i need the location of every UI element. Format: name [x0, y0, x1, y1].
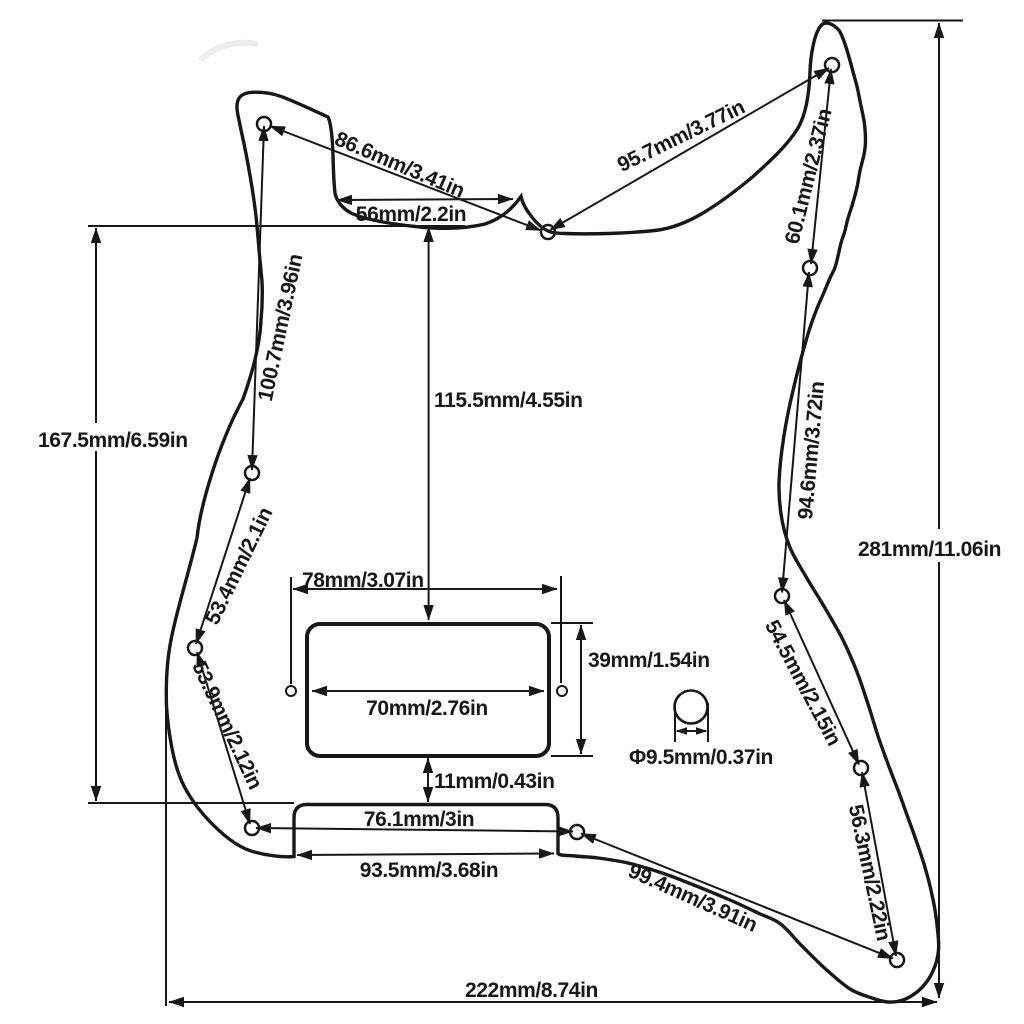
svg-text:60.1mm/2.37in: 60.1mm/2.37in	[781, 107, 837, 247]
svg-text:53.9mm/2.12in: 53.9mm/2.12in	[187, 658, 266, 793]
svg-text:78mm/3.07in: 78mm/3.07in	[302, 569, 424, 592]
svg-text:Φ9.5mm/0.37in: Φ9.5mm/0.37in	[629, 746, 773, 769]
svg-text:76.1mm/3in: 76.1mm/3in	[364, 808, 474, 831]
svg-text:56mm/2.2in: 56mm/2.2in	[356, 203, 466, 226]
svg-text:54.5mm/2.15in: 54.5mm/2.15in	[760, 616, 845, 749]
svg-text:53.4mm/2.1in: 53.4mm/2.1in	[201, 504, 277, 628]
svg-text:39mm/1.54in: 39mm/1.54in	[588, 649, 710, 672]
svg-text:222mm/8.74in: 222mm/8.74in	[465, 979, 598, 1002]
svg-text:86.6mm/3.41in: 86.6mm/3.41in	[331, 127, 467, 202]
svg-text:167.5mm/6.59in: 167.5mm/6.59in	[38, 429, 188, 452]
svg-text:281mm/11.06in: 281mm/11.06in	[858, 538, 1001, 561]
svg-text:70mm/2.76in: 70mm/2.76in	[366, 697, 488, 720]
svg-text:115.5mm/4.55in: 115.5mm/4.55in	[434, 389, 583, 412]
svg-text:11mm/0.43in: 11mm/0.43in	[434, 770, 555, 793]
svg-text:56.3mm/2.22in: 56.3mm/2.22in	[844, 803, 895, 943]
svg-text:94.6mm/3.72in: 94.6mm/3.72in	[794, 380, 829, 520]
svg-text:93.5mm/3.68in: 93.5mm/3.68in	[360, 859, 498, 882]
svg-text:95.7mm/3.77in: 95.7mm/3.77in	[614, 95, 748, 176]
